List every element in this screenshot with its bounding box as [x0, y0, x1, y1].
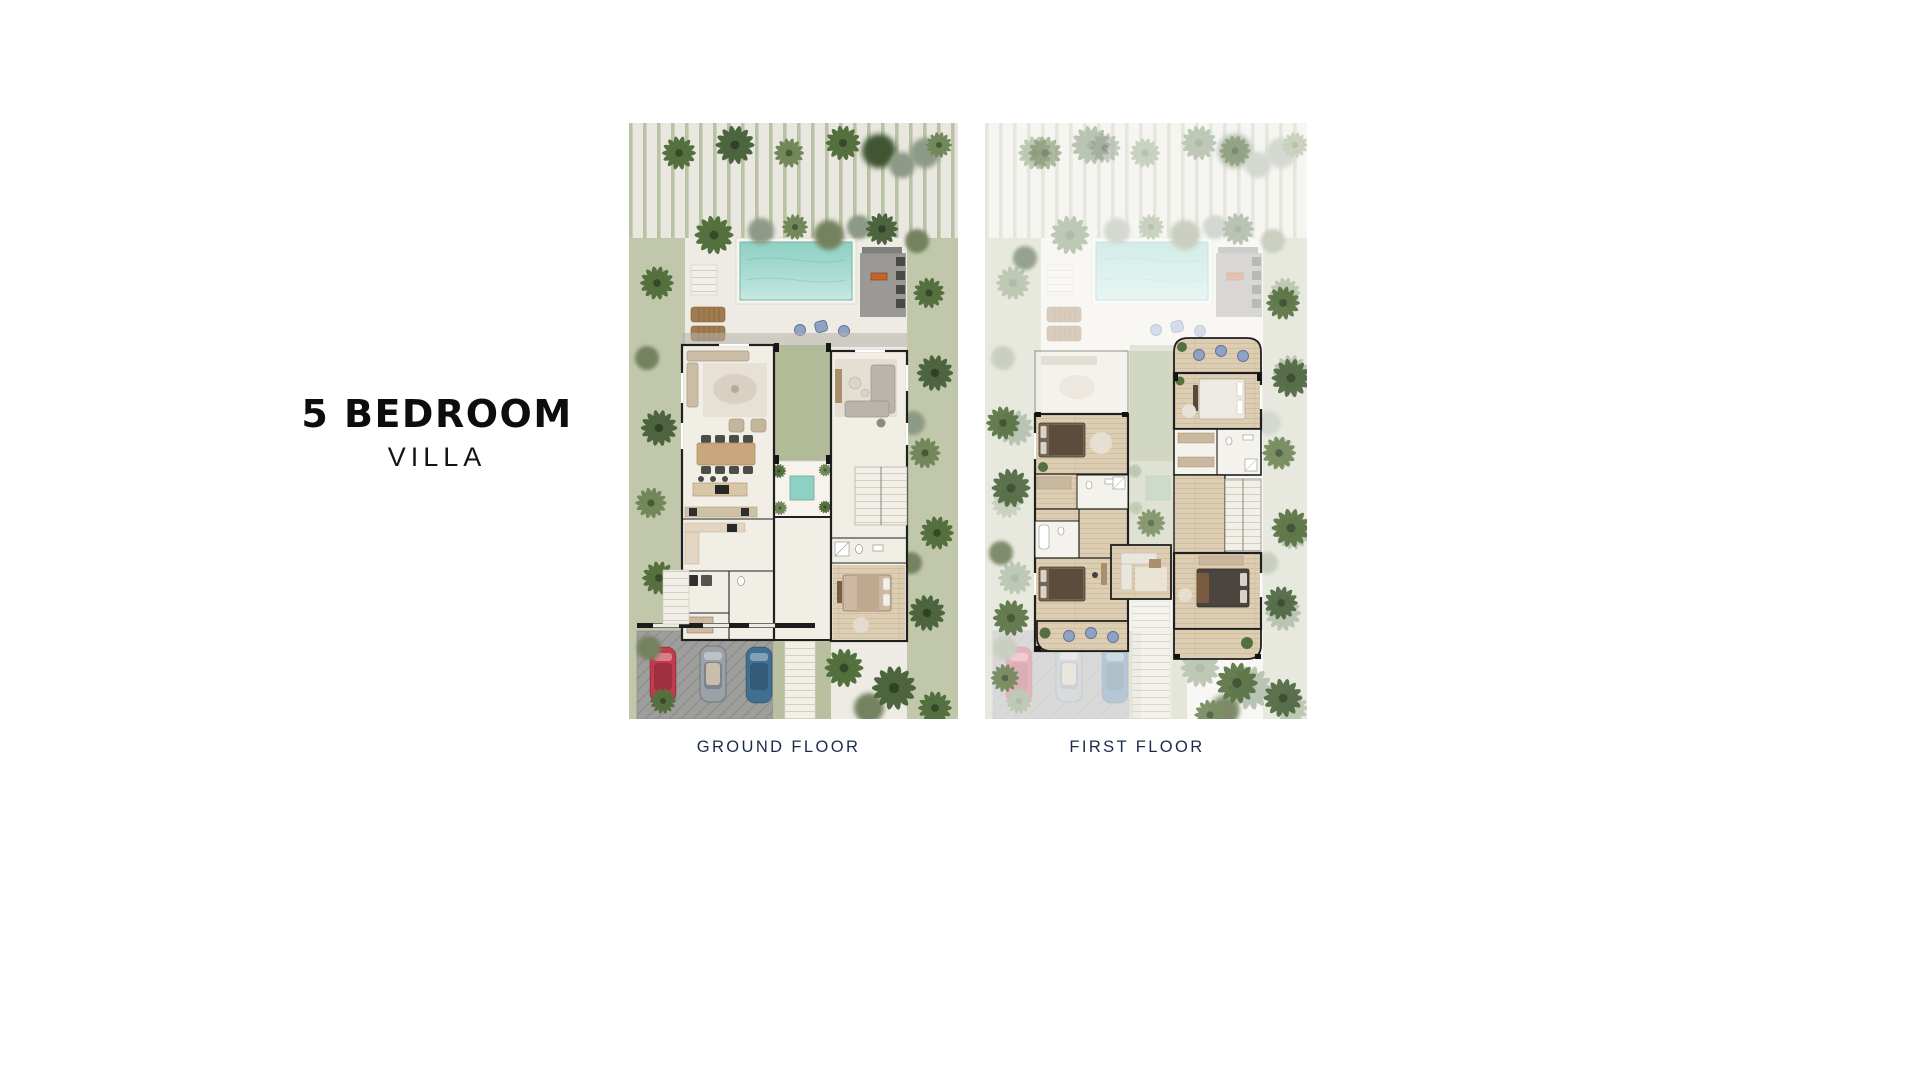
brochure-page: { "title": { "line1": "5 BEDROOM", "line…: [0, 0, 1920, 1080]
ground-floor-label: GROUND FLOOR: [614, 738, 943, 757]
desk: [1101, 563, 1107, 585]
bathroom: [1077, 475, 1128, 509]
side-steps: [663, 570, 689, 624]
entrance-foyer: [774, 517, 831, 640]
ground-floor-drawing: [629, 123, 958, 719]
armchair: [729, 419, 744, 432]
master-bedroom: [1174, 373, 1261, 429]
balcony-right: [1174, 629, 1261, 659]
wardrobe: [1037, 477, 1071, 489]
armchair: [751, 419, 766, 432]
sofa: [687, 363, 698, 407]
dining-table: [697, 443, 755, 465]
master-wardrobe-bath: [1174, 429, 1261, 475]
title-block: 5 BEDROOM VILLA: [237, 392, 637, 473]
staircase-upper: [1225, 479, 1261, 551]
family-area: [1111, 545, 1171, 599]
bathroom-2: [1035, 521, 1079, 558]
first-floor-drawing: [985, 123, 1307, 719]
guest-bedroom: [833, 565, 905, 639]
staircase: [855, 467, 907, 525]
wardrobe: [1199, 556, 1243, 565]
sofa: [845, 401, 889, 417]
page-subtitle: VILLA: [237, 442, 637, 473]
ground-floor-plan: GROUND FLOOR: [629, 123, 958, 719]
tv-console: [835, 369, 842, 403]
dryer: [701, 575, 712, 586]
first-floor-plan: FIRST FLOOR: [985, 123, 1307, 719]
toilet: [738, 577, 745, 586]
sofa: [687, 351, 749, 361]
balcony-left: [1037, 621, 1128, 651]
double-height-void: [1035, 351, 1128, 414]
page-title: 5 BEDROOM: [237, 392, 637, 436]
ghost-entrance-steps: [1132, 601, 1170, 719]
side-table: [1149, 559, 1161, 568]
upper-hall: [1174, 475, 1225, 553]
first-floor-label: FIRST FLOOR: [976, 738, 1298, 757]
balcony-master: [1174, 338, 1261, 373]
bedroom-4: [1174, 553, 1261, 629]
cooktop: [715, 485, 729, 494]
sofa: [1121, 564, 1132, 590]
wet-kitchen-cooktop: [727, 524, 737, 532]
